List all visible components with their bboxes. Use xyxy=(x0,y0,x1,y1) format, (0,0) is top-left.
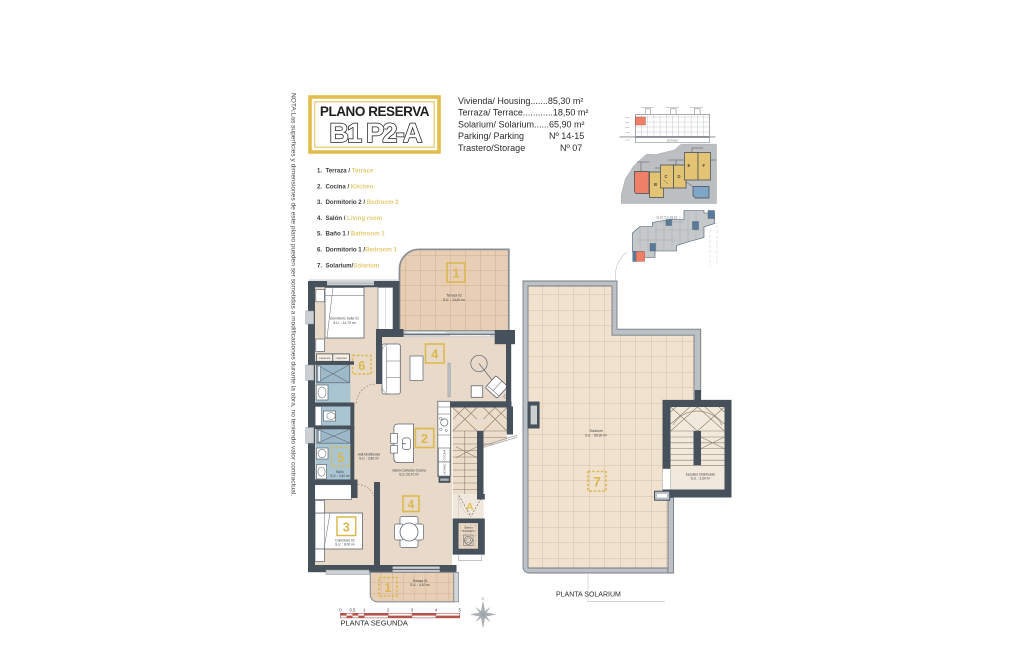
svg-text:B1 P2-A: B1 P2-A xyxy=(329,118,422,148)
svg-text:PLANO RESERVA: PLANO RESERVA xyxy=(320,104,430,119)
svg-text:4. Salón / Living room: 4. Salón / Living room xyxy=(317,215,383,222)
svg-text:Vivienda/ Housing.......85,30: Vivienda/ Housing.......85,30 m² xyxy=(458,96,583,106)
svg-text:NOTA:Las superficies y dimensi: NOTA:Las superficies y dimensiones de es… xyxy=(290,93,297,496)
svg-text:Capazara: Capazara xyxy=(335,356,347,360)
svg-text:S.U. : 14,70 m²: S.U. : 14,70 m² xyxy=(333,321,357,325)
svg-text:F: F xyxy=(703,163,706,168)
svg-text:C: C xyxy=(665,174,668,179)
svg-text:2. Cocina / Kitchen: 2. Cocina / Kitchen xyxy=(317,183,373,190)
svg-text:Capazara: Capazara xyxy=(319,356,331,360)
svg-text:S.U. : 2,60 m²: S.U. : 2,60 m² xyxy=(691,477,711,481)
svg-text:S.U. : 3,40 m²: S.U. : 3,40 m² xyxy=(330,474,350,478)
svg-text:PLANTA SOLARIUM: PLANTA SOLARIUM xyxy=(556,592,621,599)
svg-text:S.U. : 4,10 m²: S.U. : 4,10 m² xyxy=(410,583,430,587)
svg-text:E: E xyxy=(688,163,691,168)
svg-text:Nº 07: Nº 07 xyxy=(560,143,582,153)
svg-text:4: 4 xyxy=(431,347,439,362)
svg-text:Tendedero: Tendedero xyxy=(462,529,475,533)
svg-text:Terraza/ Terrace............18: Terraza/ Terrace............18,50 m² xyxy=(458,108,588,118)
svg-text:1: 1 xyxy=(452,266,459,281)
svg-text:S.U. : 8,00 m²: S.U. : 8,00 m² xyxy=(335,543,355,547)
svg-text:Solarium/ Solarium......65,90: Solarium/ Solarium......65,90 m² xyxy=(458,119,585,129)
svg-text:2: 2 xyxy=(421,431,428,446)
svg-text:Dormitorio Suite 01: Dormitorio Suite 01 xyxy=(330,317,359,321)
svg-text:0,5: 0,5 xyxy=(349,608,355,613)
svg-text:PLANTA SEGUNDA: PLANTA SEGUNDA xyxy=(341,619,408,628)
svg-text:A: A xyxy=(466,501,474,513)
svg-text:COCINA: COCINA xyxy=(443,449,447,460)
svg-text:3. Dormitorio 2 / Bedroom 2: 3. Dormitorio 2 / Bedroom 2 xyxy=(317,199,399,206)
svg-text:Trastero/Storage: Trastero/Storage xyxy=(458,143,525,153)
svg-text:HORNO: HORNO xyxy=(443,463,447,474)
svg-text:5. Baño 1 / Bathroom 1: 5. Baño 1 / Bathroom 1 xyxy=(317,231,385,238)
svg-text:SÓTANO: SÓTANO xyxy=(667,137,679,142)
svg-text:7. Solarium/Solarium: 7. Solarium/Solarium xyxy=(317,262,380,269)
svg-text:S.U.:26,70 m²: S.U.:26,70 m² xyxy=(399,473,419,477)
svg-text:Solarium: Solarium xyxy=(589,429,602,433)
svg-text:1: 1 xyxy=(384,580,391,595)
svg-text:Terraza 02: Terraza 02 xyxy=(446,294,462,298)
svg-text:Parking/ Parking: Parking/ Parking xyxy=(458,131,524,141)
svg-text:B: B xyxy=(654,182,657,187)
svg-text:D: D xyxy=(678,174,681,179)
svg-text:6: 6 xyxy=(358,358,365,373)
svg-text:7: 7 xyxy=(593,475,601,490)
svg-text:1. Terraza / Terrace: 1. Terraza / Terrace xyxy=(317,168,374,175)
svg-text:Nº 14-15: Nº 14-15 xyxy=(549,131,584,141)
svg-text:SÓTANO: SÓTANO xyxy=(656,214,677,220)
svg-text:4: 4 xyxy=(408,500,415,512)
svg-text:S.U. : 3,80 m²: S.U. : 3,80 m² xyxy=(359,457,379,461)
svg-text:6. Dormitorio 1 /Bedroom 1: 6. Dormitorio 1 /Bedroom 1 xyxy=(317,247,398,254)
svg-text:S.U. : 14,40 m²: S.U. : 14,40 m² xyxy=(443,298,466,302)
svg-text:S.U. : 65,90 m²: S.U. : 65,90 m² xyxy=(585,433,608,437)
svg-text:Galería: Galería xyxy=(464,526,473,530)
svg-text:3: 3 xyxy=(343,519,350,534)
svg-text:5: 5 xyxy=(337,450,344,465)
